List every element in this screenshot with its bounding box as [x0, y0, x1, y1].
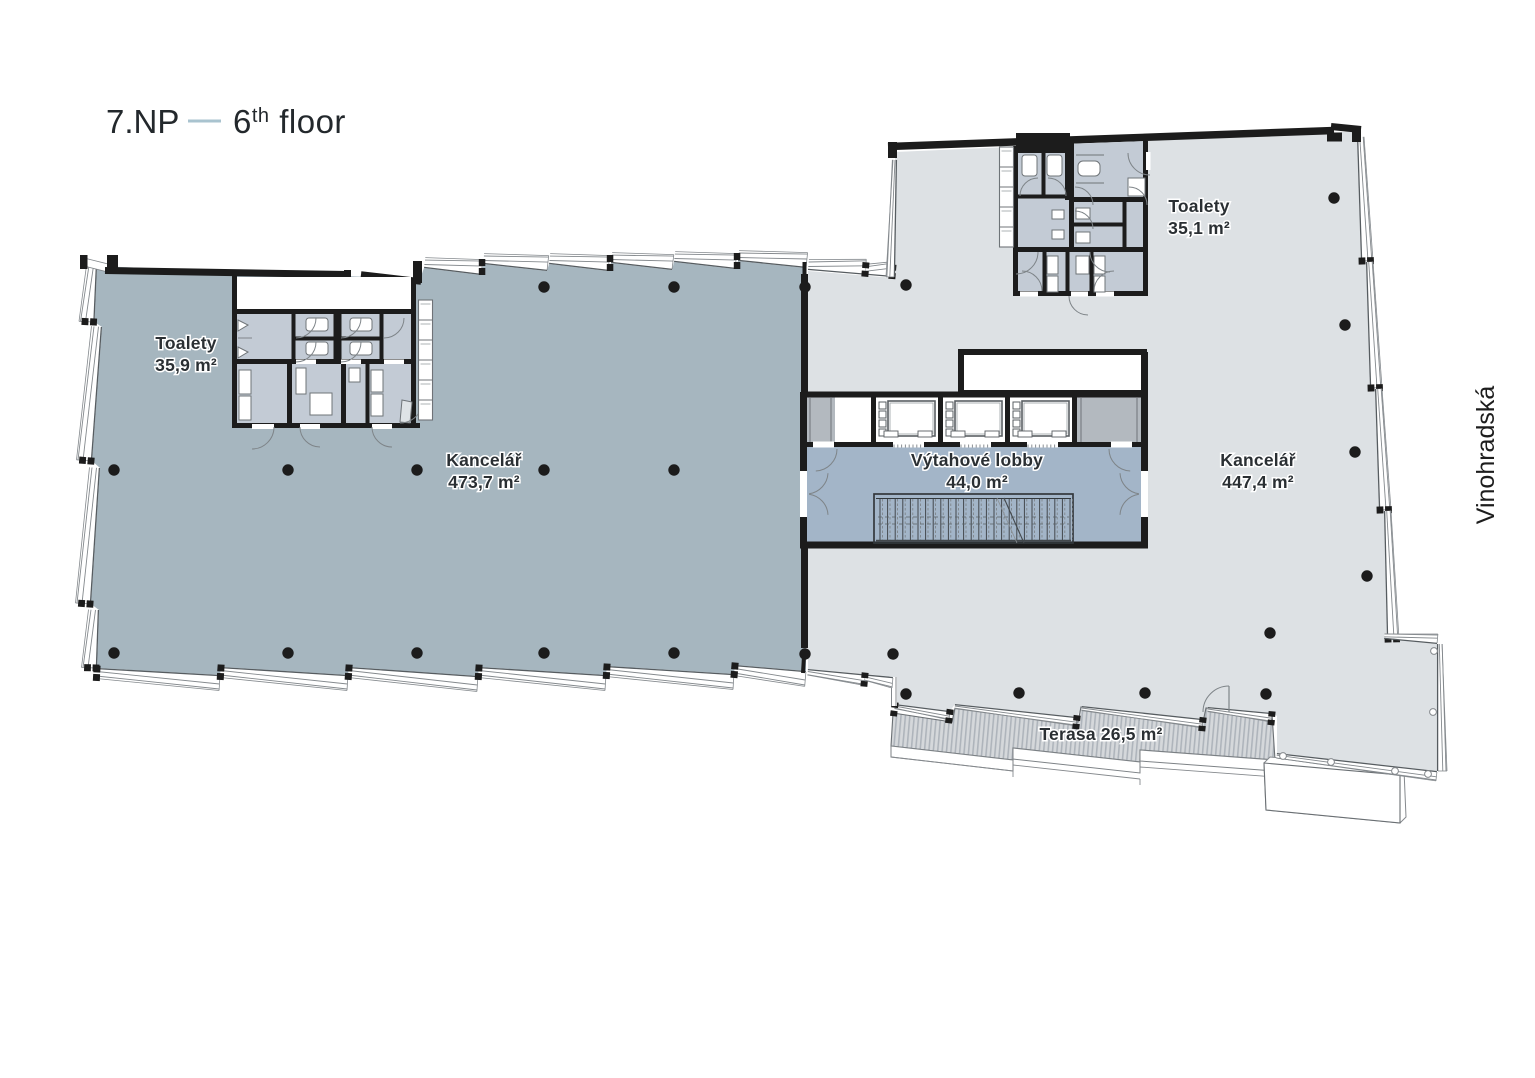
svg-text:Vinohradská: Vinohradská: [1472, 386, 1500, 525]
svg-text:6th floor: 6th floor: [233, 103, 346, 140]
svg-text:Terasa 26,5 m²: Terasa 26,5 m²: [1039, 724, 1162, 744]
svg-text:7.NP: 7.NP: [106, 103, 179, 140]
